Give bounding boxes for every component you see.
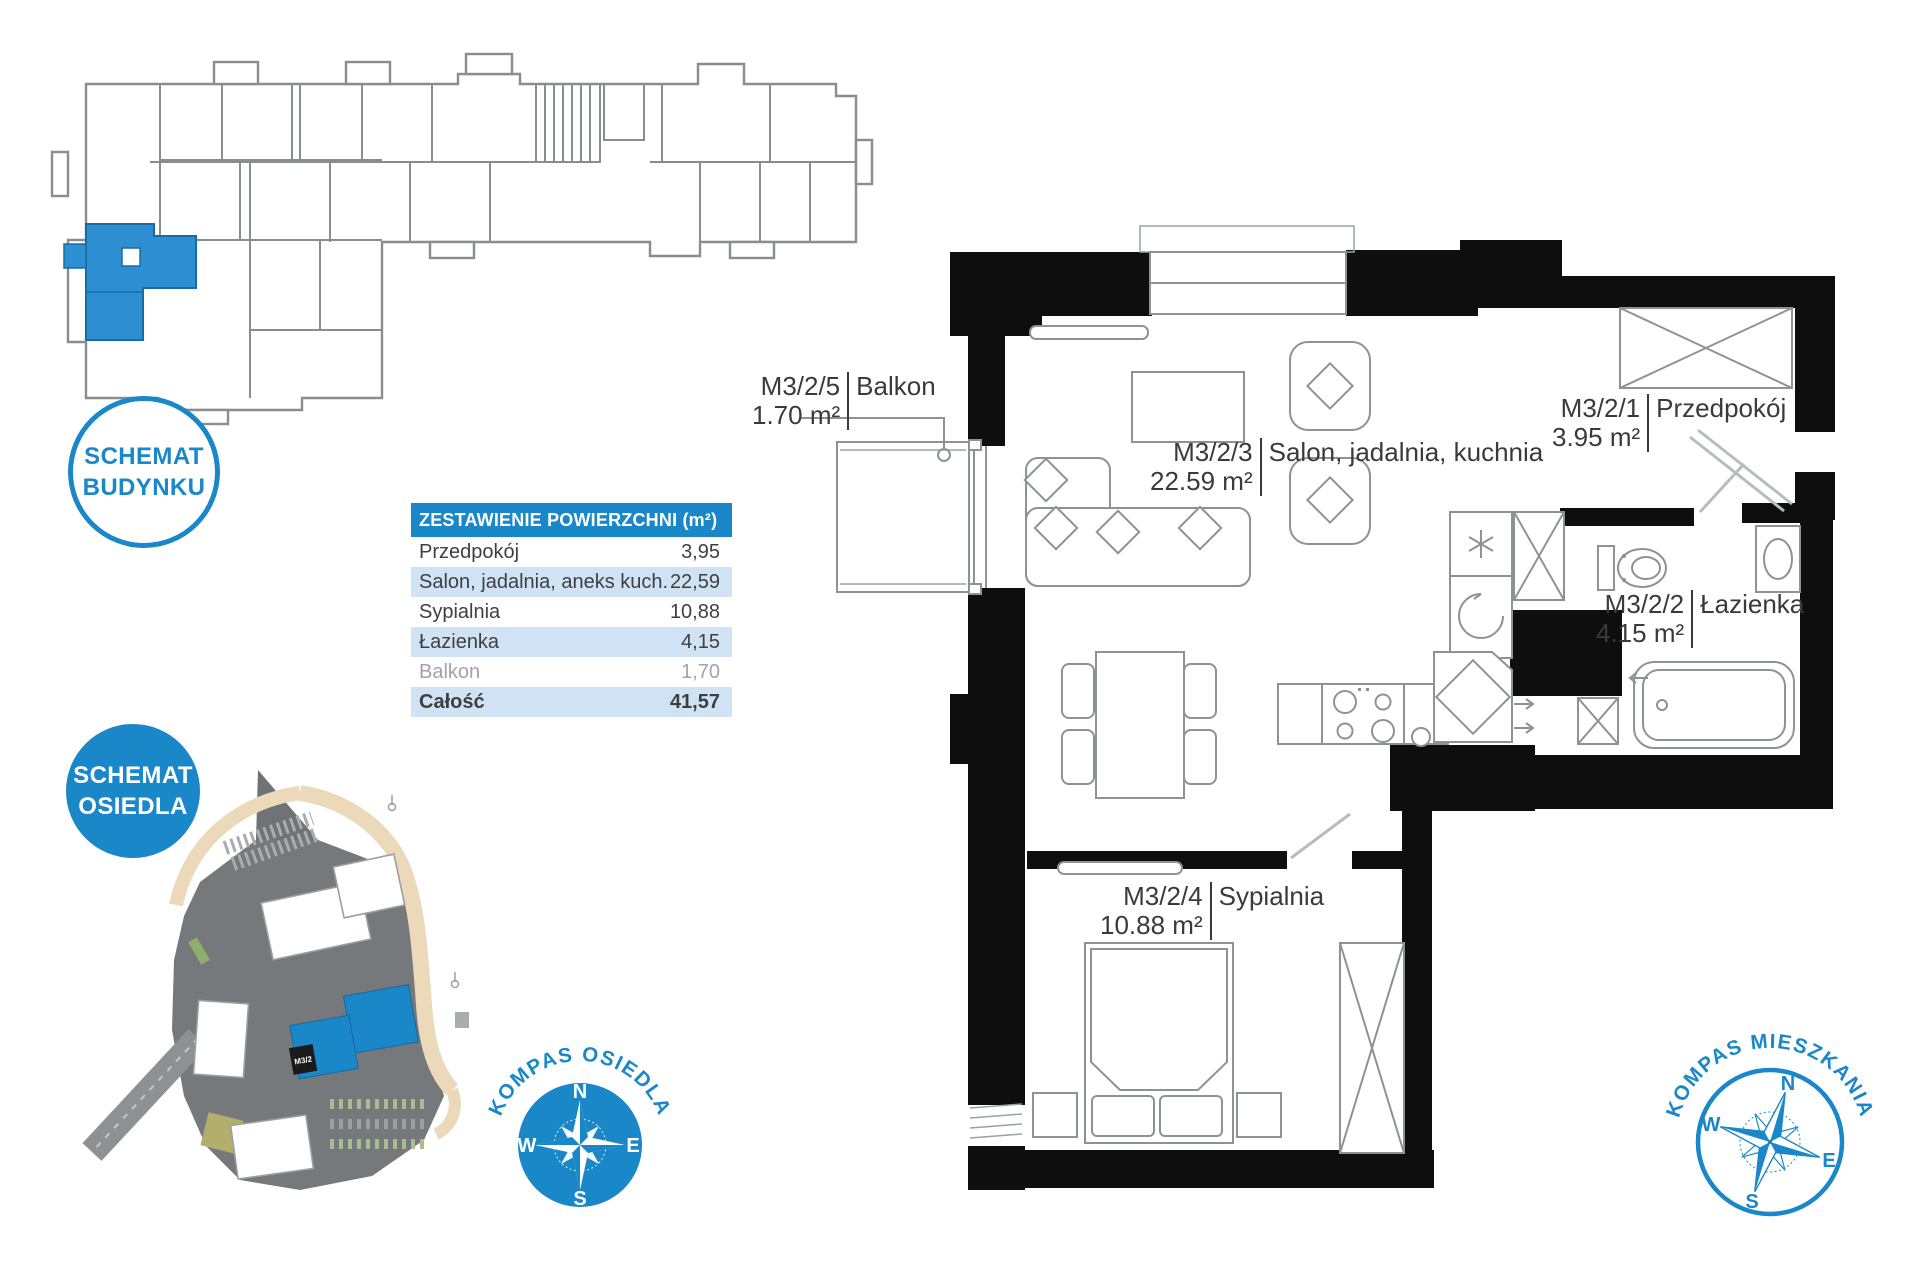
dining-table [1096,652,1184,798]
compass-n: N [1781,1073,1795,1095]
table-row-total: Całość 41,57 [411,687,732,717]
label-divider [1691,590,1693,648]
room-code: M3/2/3 [1150,438,1253,467]
bedroom-window [970,1104,1022,1138]
living-window [1140,226,1354,314]
compass-e: E [1822,1150,1835,1172]
table-row: Balkon 1,70 [411,657,732,687]
row-label: Całość [419,691,485,714]
room-code: M3/2/4 [1100,882,1203,911]
label-divider [1210,882,1212,940]
table-row: Przedpokój 3,95 [411,537,732,567]
room-label-przedpokoj: M3/2/1 3.95 m² Przedpokój [1552,394,1786,452]
row-value: 3,95 [681,541,724,564]
building-schematic [52,54,872,424]
compass-s: S [573,1188,586,1210]
row-label: Łazienka [419,631,499,654]
compass-w: W [518,1135,537,1157]
room-area: 1.70 m² [752,401,840,430]
label-divider [847,372,849,430]
room-label-salon: M3/2/3 22.59 m² Salon, jadalnia, kuchnia [1150,438,1543,496]
balcony [800,418,986,594]
area-summary-table: ZESTAWIENIE POWIERZCHNI (m²) Przedpokój … [411,503,732,717]
bathroom-door [1700,464,1744,512]
room-area: 22.59 m² [1150,467,1253,496]
schemat-osiedla-badge: SCHEMAT OSIEDLA [66,724,200,858]
room-name: Salon, jadalnia, kuchnia [1269,438,1544,467]
room-name: Sypialnia [1219,882,1325,911]
row-label: Przedpokój [419,541,519,564]
table-title: ZESTAWIENIE POWIERZCHNI (m²) [411,503,732,537]
corner-unit [1434,652,1512,742]
compass-w: W [1702,1114,1721,1136]
room-name: Balkon [856,372,936,401]
row-value: 41,57 [670,691,724,714]
apartment-compass: N E S W KOMPAS MIESZKANIA [1662,1030,1879,1214]
page: M3/2 [0,0,1920,1261]
room-code: M3/2/5 [752,372,840,401]
row-label: Sypialnia [419,601,500,624]
apartment-floor-plan [800,226,1835,1190]
room-area: 10.88 m² [1100,911,1203,940]
badge-line: SCHEMAT [73,760,193,791]
estate-compass: N S W E KOMPAS OSIEDLA [484,1043,676,1210]
row-label: Salon, jadalnia, aneks kuch. [419,571,668,594]
nightstand [1237,1093,1281,1137]
room-label-balkon: M3/2/5 1.70 m² Balkon [752,372,936,430]
compass-n: N [573,1081,587,1103]
room-name: Przedpokój [1656,394,1786,423]
room-label-sypialnia: M3/2/4 10.88 m² Sypialnia [1100,882,1324,940]
row-value: 22,59 [670,571,724,594]
nightstand [1033,1093,1077,1137]
table-row: Salon, jadalnia, aneks kuch. 22,59 [411,567,732,597]
badge-line: BUDYNKU [83,472,206,503]
row-value: 4,15 [681,631,724,654]
row-value: 1,70 [681,661,724,684]
room-area: 4.15 m² [1596,619,1684,648]
compass-e: E [626,1135,639,1157]
label-divider [1260,438,1262,496]
room-name: Łazienka [1700,590,1804,619]
room-code: M3/2/1 [1552,394,1640,423]
badge-line: OSIEDLA [78,791,187,822]
room-label-lazienka: M3/2/2 4.15 m² Łazienka [1596,590,1804,648]
room-area: 3.95 m² [1552,423,1640,452]
table-row: Sypialnia 10,88 [411,597,732,627]
badge-line: SCHEMAT [84,441,204,472]
label-divider [1647,394,1649,452]
row-label: Balkon [419,661,480,684]
bedroom-door [1291,814,1350,858]
estate-highlighted-building [343,985,418,1054]
row-value: 10,88 [670,601,724,624]
compass-s: S [1745,1191,1758,1213]
schemat-budynku-badge: SCHEMAT BUDYNKU [68,396,220,548]
room-code: M3/2/2 [1596,590,1684,619]
table-row: Łazienka 4,15 [411,627,732,657]
